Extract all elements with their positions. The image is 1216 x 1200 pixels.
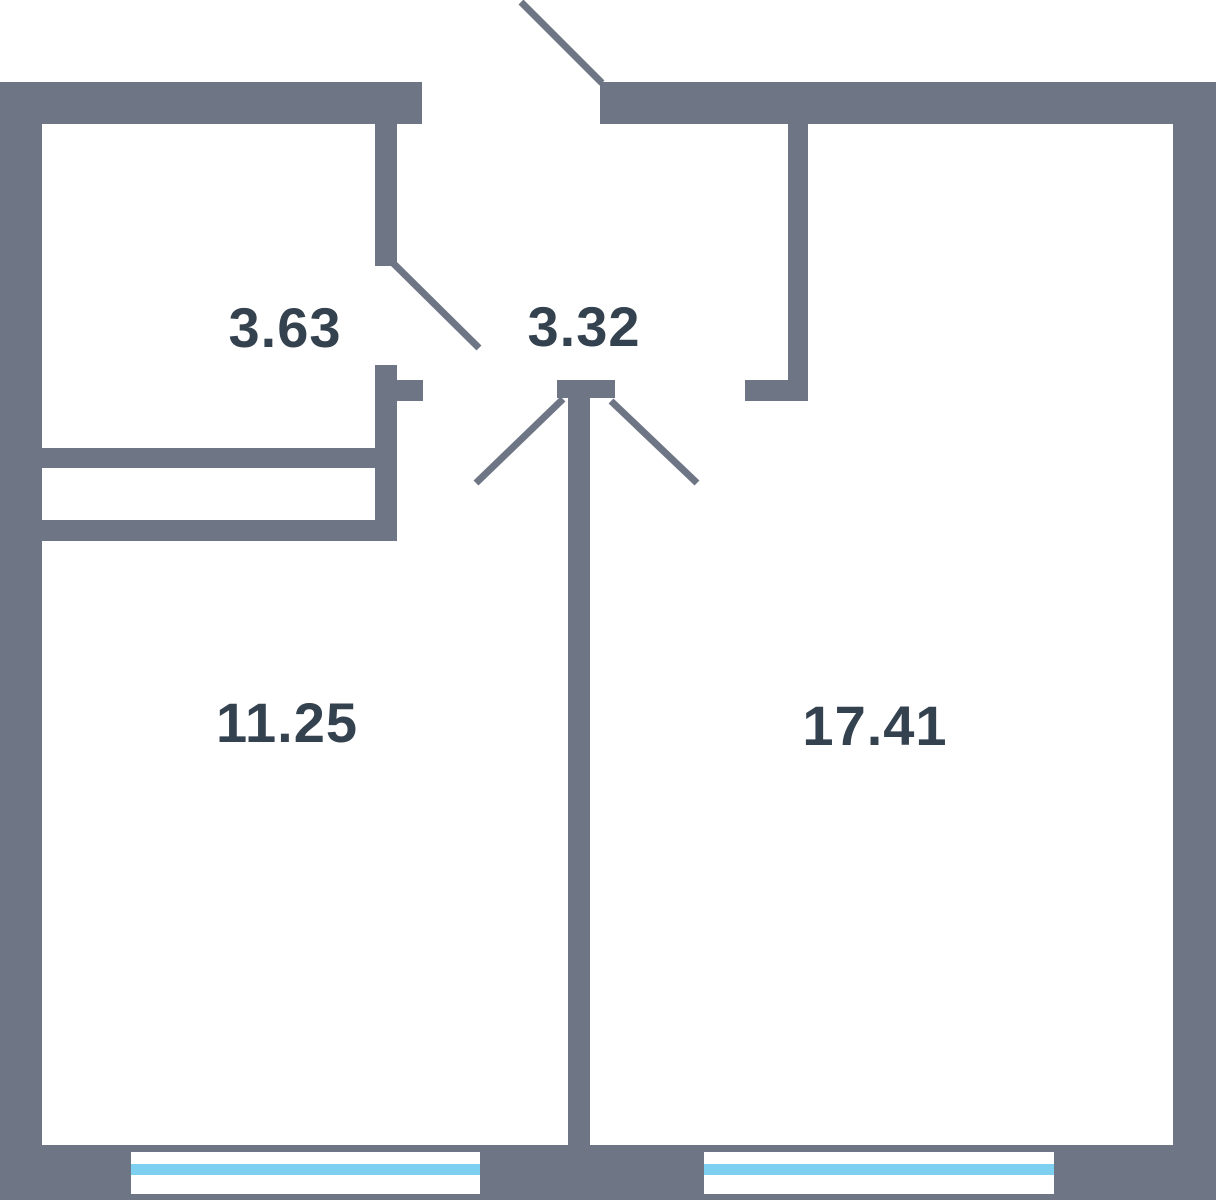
svg-text:11.25: 11.25: [216, 691, 358, 754]
svg-text:3.63: 3.63: [229, 296, 342, 359]
svg-text:17.41: 17.41: [802, 694, 947, 757]
svg-text:3.32: 3.32: [528, 295, 641, 358]
